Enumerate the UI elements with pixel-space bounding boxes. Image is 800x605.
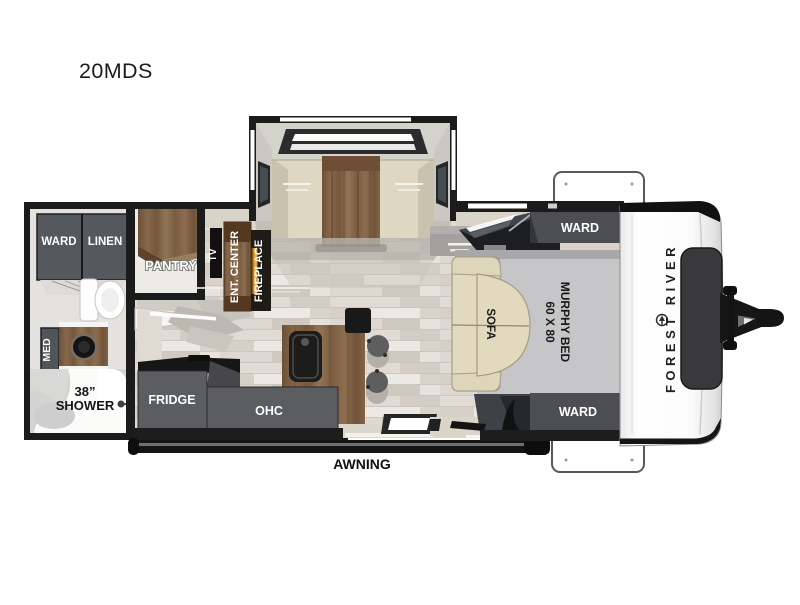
svg-text:WARD: WARD [559, 405, 597, 419]
svg-text:AWNING: AWNING [333, 456, 391, 472]
svg-text:SHOWER: SHOWER [56, 398, 115, 413]
svg-text:FIREPLACE: FIREPLACE [253, 240, 265, 302]
svg-text:20MDS: 20MDS [79, 59, 153, 83]
svg-text:ENT. CENTER: ENT. CENTER [229, 231, 241, 303]
svg-text:60 X 80: 60 X 80 [543, 301, 557, 343]
svg-text:PANTRY: PANTRY [145, 258, 197, 273]
svg-text:FRIDGE: FRIDGE [148, 393, 195, 407]
svg-text:LINEN: LINEN [88, 236, 123, 248]
svg-text:WARD: WARD [41, 236, 76, 248]
svg-text:WARD: WARD [561, 221, 599, 235]
svg-text:SOFA: SOFA [484, 308, 496, 339]
svg-text:FOREST RIVER: FOREST RIVER [663, 243, 678, 393]
svg-text:OHC: OHC [255, 404, 283, 418]
svg-text:38”: 38” [75, 384, 96, 399]
svg-text:MED: MED [41, 338, 53, 362]
svg-text:TV: TV [208, 248, 219, 261]
svg-text:MURPHY BED: MURPHY BED [558, 282, 572, 363]
